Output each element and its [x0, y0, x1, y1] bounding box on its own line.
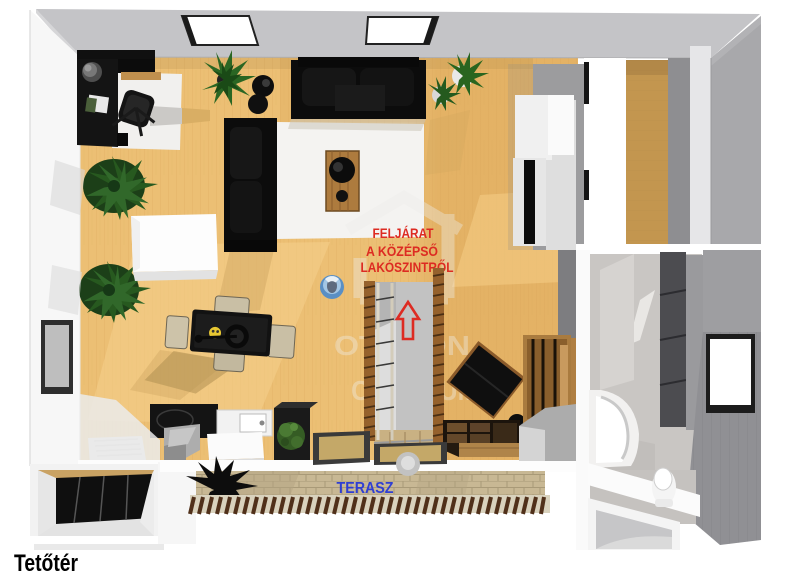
- svg-text:TERASZ: TERASZ: [337, 480, 394, 497]
- svg-text:FELJÁRAT: FELJÁRAT: [373, 225, 434, 241]
- svg-text:A KÖZÉPSŐ: A KÖZÉPSŐ: [366, 242, 438, 259]
- svg-text:Tetőtér: Tetőtér: [14, 550, 78, 577]
